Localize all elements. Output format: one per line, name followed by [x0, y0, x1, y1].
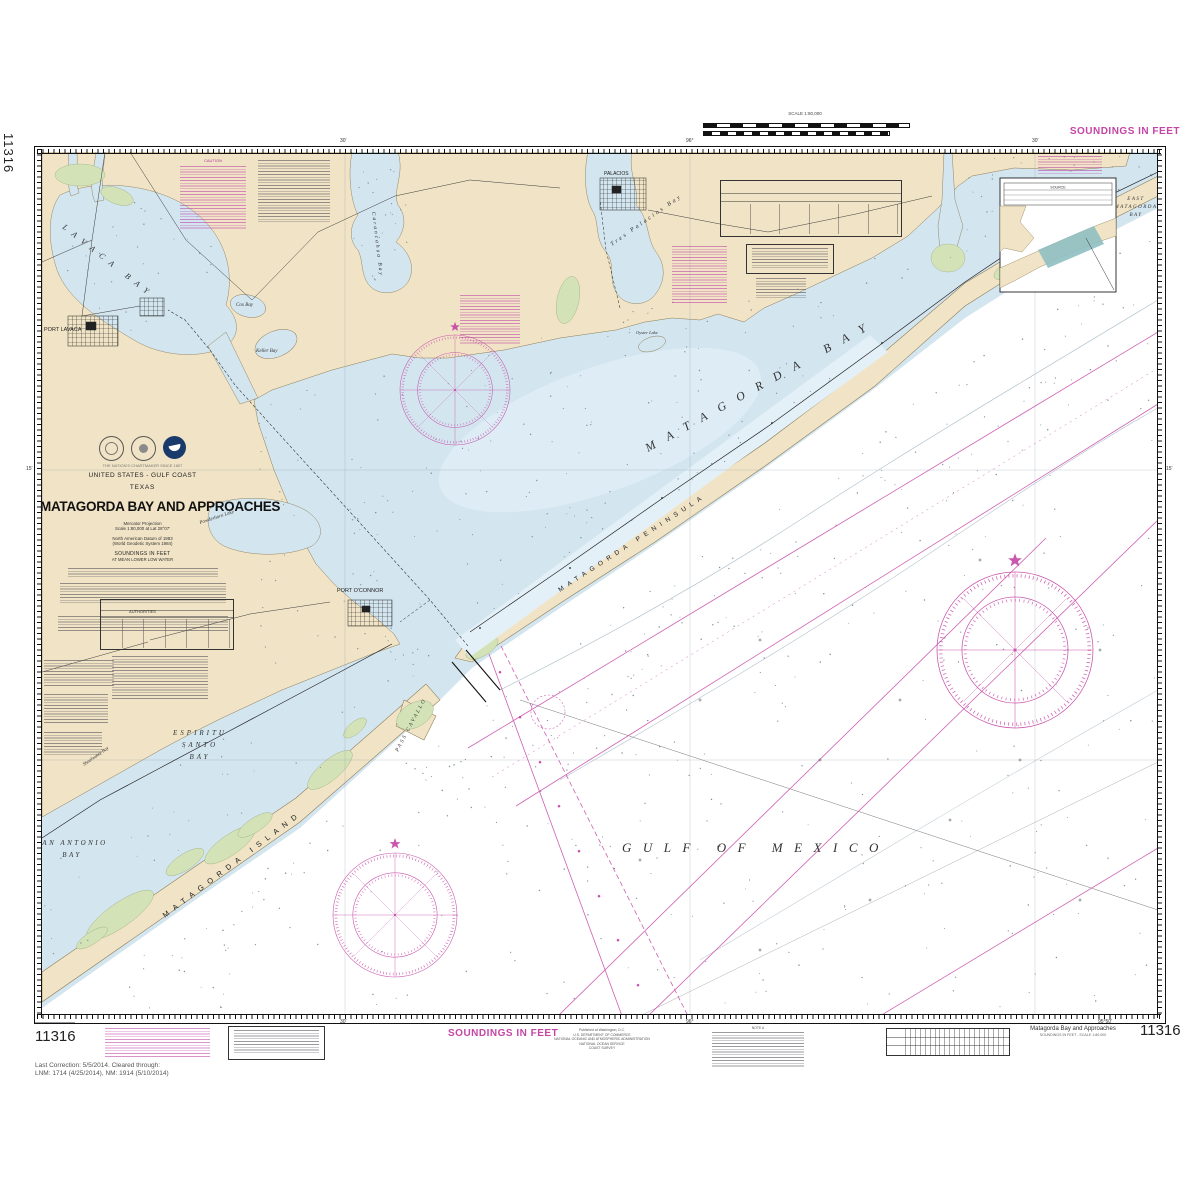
datum-line-2: (World Geodetic System 1984) — [40, 541, 245, 546]
correction-line-1: Last Correction: 5/5/2014. Cleared throu… — [35, 1062, 169, 1070]
lon-label-top-2: 96° — [686, 138, 694, 144]
tidal-information-table — [720, 180, 902, 237]
gray-note-block — [756, 278, 806, 298]
conversion-table — [886, 1028, 1010, 1056]
scale-bar-yards[interactable] — [703, 131, 890, 136]
note-a-block: NOTE A — [712, 1026, 804, 1068]
inset-top-note — [1038, 156, 1102, 174]
publisher-line-5: COAST SURVEY — [550, 1046, 654, 1051]
chartmaker-tagline: THE NATION'S CHARTMAKER SINCE 1807 — [40, 463, 245, 468]
note-block-3 — [44, 694, 108, 724]
soundings-note-top-right: SOUNDINGS IN FEET — [1015, 126, 1180, 137]
chart-title: MATAGORDA BAY AND APPROACHES — [40, 499, 245, 514]
soundings-note-bottom: SOUNDINGS IN FEET — [448, 1028, 558, 1039]
border-ticks-top — [37, 149, 1161, 154]
bottom-right-chart-title: Matagorda Bay and Approaches SOUNDINGS I… — [1018, 1026, 1128, 1037]
border-ticks-bottom — [37, 1014, 1161, 1019]
publisher-block: Published at Washington, D.C. U.S. DEPAR… — [550, 1028, 654, 1051]
commerce-seal-icon — [99, 436, 124, 461]
chart-subtitle-small: SOUNDINGS IN FEET - SCALE 1:80,000 — [1018, 1033, 1128, 1037]
scale-heading: SCALE 1:80,000 — [760, 111, 850, 116]
border-ticks-right — [1157, 149, 1162, 1018]
lon-label-bottom-3: 95°50' — [1098, 1019, 1112, 1025]
lat-label-left-1: 15' — [26, 466, 33, 472]
icw-magenta-note — [672, 246, 727, 304]
lon-label-bottom-1: 30' — [340, 1019, 347, 1025]
caution-note-upper: CAUTION — [180, 158, 246, 232]
supplemental-box — [746, 244, 834, 274]
lon-label-bottom-2: 96° — [686, 1019, 694, 1025]
chart-number-left-vertical: 11316 — [1, 133, 16, 173]
bay-magenta-note — [460, 295, 520, 345]
noaa-logo-icon — [163, 436, 186, 459]
tidal-table-small — [100, 599, 234, 650]
lat-label-right-1: 15' — [1166, 466, 1173, 472]
edition-note-tiny — [35, 1022, 75, 1025]
caution-heading: CAUTION — [180, 158, 246, 163]
title-notes-text — [68, 568, 218, 578]
chart-number-bottom-right: 11316 — [1140, 1022, 1181, 1039]
nos-seal-icon — [131, 436, 156, 461]
projection-line-2: Scale 1:80,000 at Lat 28°07' — [40, 526, 245, 531]
title-region: UNITED STATES - GULF COAST — [40, 472, 245, 479]
note-block-1 — [112, 656, 208, 700]
note-block-4 — [44, 732, 102, 756]
note-block-2 — [44, 660, 114, 686]
weather-broadcast-note — [258, 160, 330, 222]
chart-number-bottom-left: 11316 — [35, 1028, 76, 1045]
correction-line-2: LNM: 1714 (4/25/2014), NM: 1914 (5/10/20… — [35, 1070, 169, 1078]
lon-label-top-3: 30' — [1032, 138, 1039, 144]
nautical-chart-page: { "colors": {"magenta":"#c445a5","land":… — [0, 0, 1200, 1200]
note-a-heading: NOTE A — [712, 1026, 804, 1030]
bottom-note-box — [228, 1026, 325, 1060]
chart-title-small: Matagorda Bay and Approaches — [1018, 1026, 1128, 1032]
bottom-caution-note — [105, 1028, 210, 1058]
scale-bar-nautical-miles[interactable] — [703, 123, 910, 128]
title-state: TEXAS — [40, 484, 245, 491]
correction-note: Last Correction: 5/5/2014. Cleared throu… — [35, 1062, 169, 1078]
datum-reference-line: AT MEAN LOWER LOW WATER — [40, 557, 245, 562]
lon-label-top-1: 30' — [340, 138, 347, 144]
